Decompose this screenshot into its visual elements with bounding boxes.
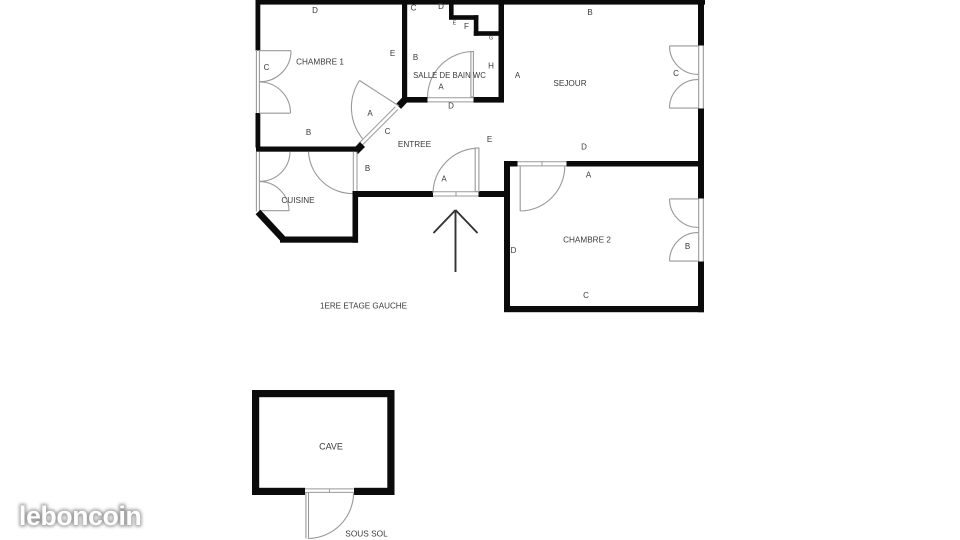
svg-text:leboncoin: leboncoin: [19, 501, 141, 531]
svg-text:D: D: [581, 143, 587, 152]
svg-text:A: A: [438, 83, 444, 92]
svg-text:A: A: [586, 171, 592, 180]
svg-text:A: A: [441, 175, 447, 184]
svg-text:G: G: [489, 36, 493, 42]
svg-text:A: A: [367, 109, 373, 118]
svg-text:B: B: [413, 53, 418, 62]
svg-text:C: C: [264, 63, 270, 72]
svg-text:ENTREE: ENTREE: [398, 140, 432, 149]
svg-text:E: E: [487, 135, 492, 144]
svg-text:CHAMBRE 2: CHAMBRE 2: [563, 236, 611, 245]
svg-text:B: B: [306, 128, 311, 137]
svg-text:SEJOUR: SEJOUR: [553, 79, 586, 88]
svg-text:D: D: [448, 102, 454, 111]
svg-text:C: C: [411, 4, 417, 13]
svg-text:CHAMBRE 1: CHAMBRE 1: [296, 58, 344, 67]
svg-text:D: D: [511, 246, 517, 255]
svg-text:D: D: [312, 6, 318, 15]
svg-text:1ERE ETAGE GAUCHE: 1ERE ETAGE GAUCHE: [320, 302, 408, 311]
svg-text:E: E: [453, 21, 457, 27]
svg-text:SALLE DE BAIN WC: SALLE DE BAIN WC: [413, 71, 486, 80]
svg-text:CUISINE: CUISINE: [281, 196, 315, 205]
svg-text:F: F: [464, 22, 469, 31]
svg-text:B: B: [587, 8, 592, 17]
svg-text:H: H: [488, 62, 494, 71]
svg-text:SOUS SOL: SOUS SOL: [345, 529, 388, 539]
svg-text:D: D: [438, 2, 444, 11]
svg-text:C: C: [583, 291, 589, 300]
svg-text:B: B: [365, 164, 370, 173]
svg-text:B: B: [685, 242, 690, 251]
svg-text:C: C: [385, 127, 391, 136]
svg-text:C: C: [673, 69, 679, 78]
svg-text:E: E: [390, 49, 395, 58]
svg-text:A: A: [515, 71, 521, 80]
svg-text:CAVE: CAVE: [319, 442, 343, 452]
